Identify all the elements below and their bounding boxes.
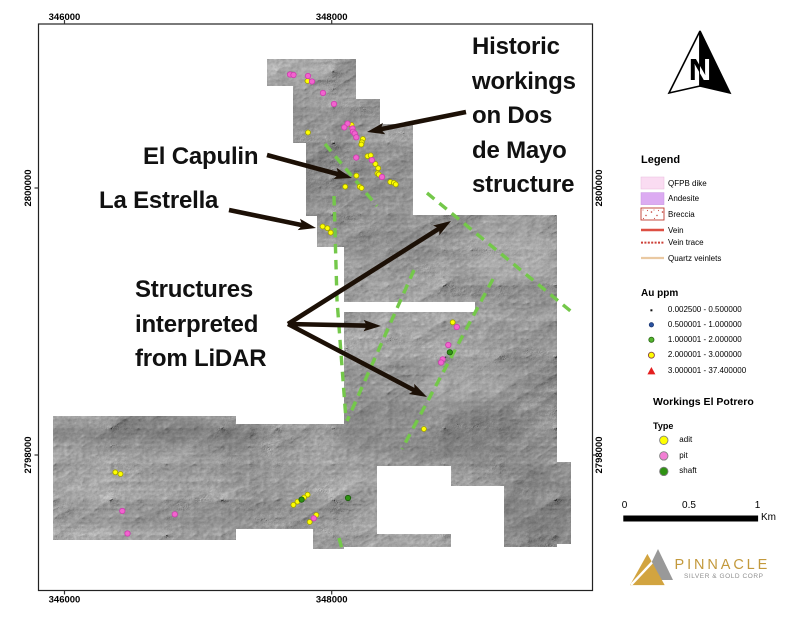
svg-text:346000: 346000	[49, 595, 81, 606]
svg-text:2798000: 2798000	[594, 437, 605, 474]
svg-text:348000: 348000	[316, 595, 348, 606]
svg-text:2798000: 2798000	[23, 437, 34, 474]
svg-text:2800000: 2800000	[23, 170, 34, 207]
svg-text:2800000: 2800000	[594, 170, 605, 207]
svg-text:348000: 348000	[316, 12, 348, 23]
svg-text:346000: 346000	[49, 12, 81, 23]
